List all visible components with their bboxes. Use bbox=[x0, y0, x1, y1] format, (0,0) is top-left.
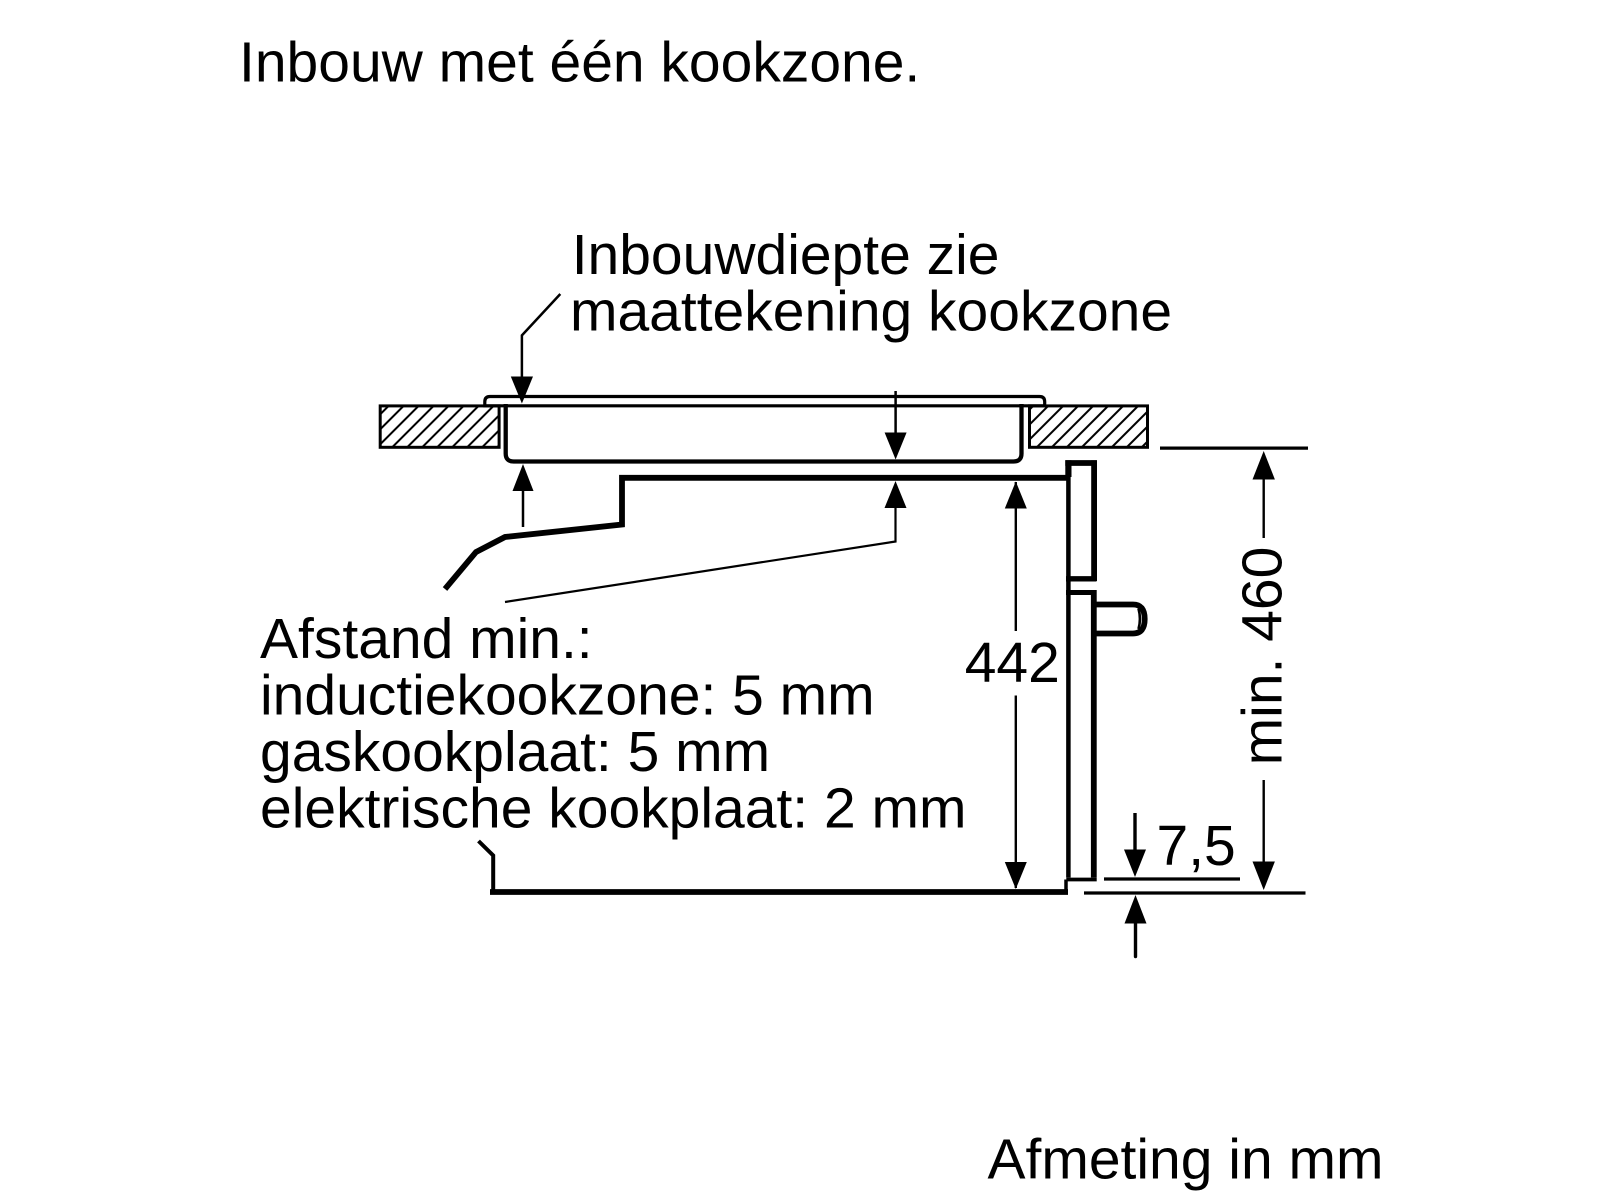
svg-text:442: 442 bbox=[965, 631, 1060, 695]
svg-text:Inbouwdiepte zie: Inbouwdiepte zie bbox=[572, 223, 1000, 287]
svg-text:Inbouw met één kookzone.: Inbouw met één kookzone. bbox=[239, 31, 920, 95]
svg-text:Afmeting in mm: Afmeting in mm bbox=[988, 1128, 1384, 1192]
svg-text:gaskookplaat: 5 mm: gaskookplaat: 5 mm bbox=[260, 720, 770, 784]
svg-text:Afstand min.:: Afstand min.: bbox=[260, 607, 593, 671]
svg-text:maattekening kookzone: maattekening kookzone bbox=[570, 280, 1172, 344]
svg-text:min. 460: min. 460 bbox=[1231, 547, 1295, 766]
svg-text:elektrische kookplaat: 2 mm: elektrische kookplaat: 2 mm bbox=[260, 777, 966, 841]
svg-text:inductiekookzone: 5 mm: inductiekookzone: 5 mm bbox=[260, 664, 875, 728]
svg-text:7,5: 7,5 bbox=[1157, 814, 1236, 878]
